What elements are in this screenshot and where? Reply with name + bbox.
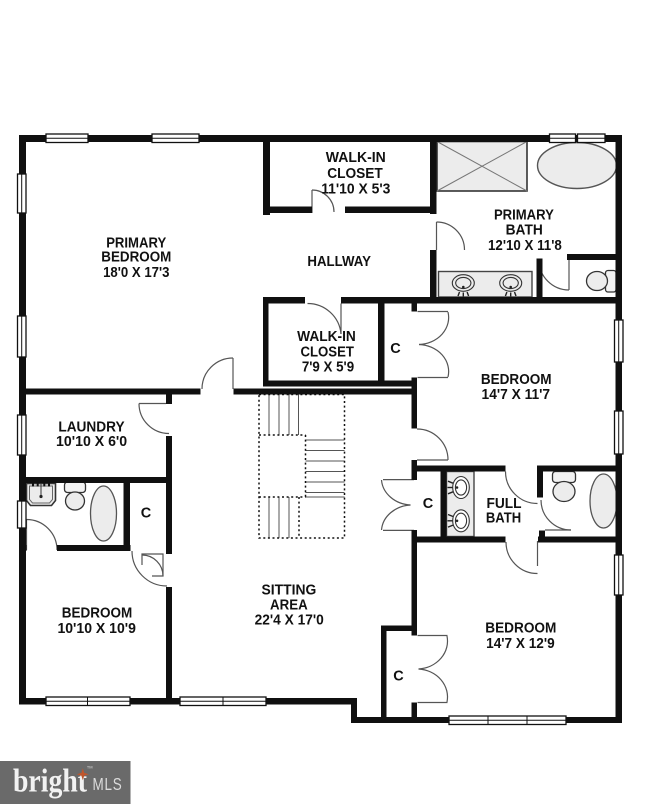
svg-text:MLS: MLS xyxy=(93,774,123,794)
svg-text:11'10 X 5'3: 11'10 X 5'3 xyxy=(321,182,390,198)
svg-text:22'4 X 17'0: 22'4 X 17'0 xyxy=(255,612,324,628)
svg-text:10'10 X 6'0: 10'10 X 6'0 xyxy=(56,434,127,450)
svg-text:PRIMARY: PRIMARY xyxy=(494,207,554,223)
svg-text:™: ™ xyxy=(87,766,94,773)
svg-text:WALK-IN: WALK-IN xyxy=(326,150,386,166)
svg-text:CLOSET: CLOSET xyxy=(327,166,383,182)
svg-text:FULL: FULL xyxy=(486,496,521,512)
svg-text:BEDROOM: BEDROOM xyxy=(101,249,171,265)
svg-text:BATH: BATH xyxy=(486,511,521,527)
svg-text:AREA: AREA xyxy=(270,598,308,614)
svg-text:C: C xyxy=(423,496,434,512)
svg-text:18'0 X 17'3: 18'0 X 17'3 xyxy=(103,265,169,281)
svg-text:C: C xyxy=(141,505,152,521)
svg-text:SITTING: SITTING xyxy=(262,582,317,598)
svg-text:10'10 X 10'9: 10'10 X 10'9 xyxy=(57,621,136,637)
svg-text:HALLWAY: HALLWAY xyxy=(307,254,371,270)
svg-text:WALK-IN: WALK-IN xyxy=(297,329,356,345)
svg-text:14'7 X 11'7: 14'7 X 11'7 xyxy=(482,387,551,403)
svg-text:C: C xyxy=(393,669,404,685)
svg-text:BEDROOM: BEDROOM xyxy=(485,621,556,637)
svg-text:14'7 X 12'9: 14'7 X 12'9 xyxy=(486,636,555,652)
svg-text:CLOSET: CLOSET xyxy=(300,345,354,361)
svg-text:BEDROOM: BEDROOM xyxy=(481,372,552,388)
svg-text:7'9 X 5'9: 7'9 X 5'9 xyxy=(302,360,354,376)
svg-text:bright: bright xyxy=(13,764,87,800)
svg-text:BEDROOM: BEDROOM xyxy=(62,605,133,621)
svg-text:C: C xyxy=(390,341,401,357)
svg-text:12'10 X 11'8: 12'10 X 11'8 xyxy=(488,238,562,254)
svg-text:BATH: BATH xyxy=(506,222,543,238)
